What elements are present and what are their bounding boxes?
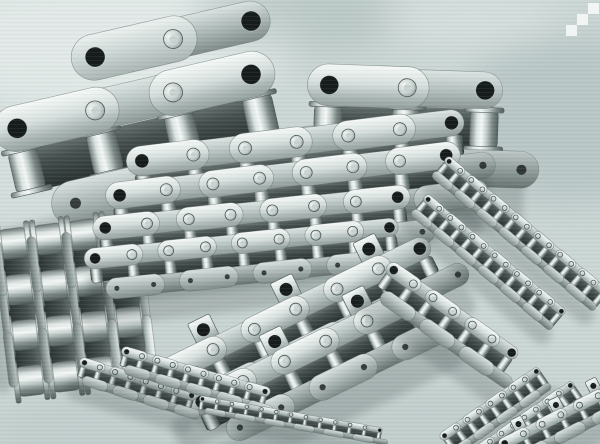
pixel-square — [588, 3, 599, 14]
pixel-square — [577, 14, 588, 25]
pixel-square — [566, 25, 577, 36]
chains-photo-svg — [0, 0, 600, 444]
roller-chains-product-photo — [0, 0, 600, 444]
print-scanline-texture — [0, 0, 600, 444]
